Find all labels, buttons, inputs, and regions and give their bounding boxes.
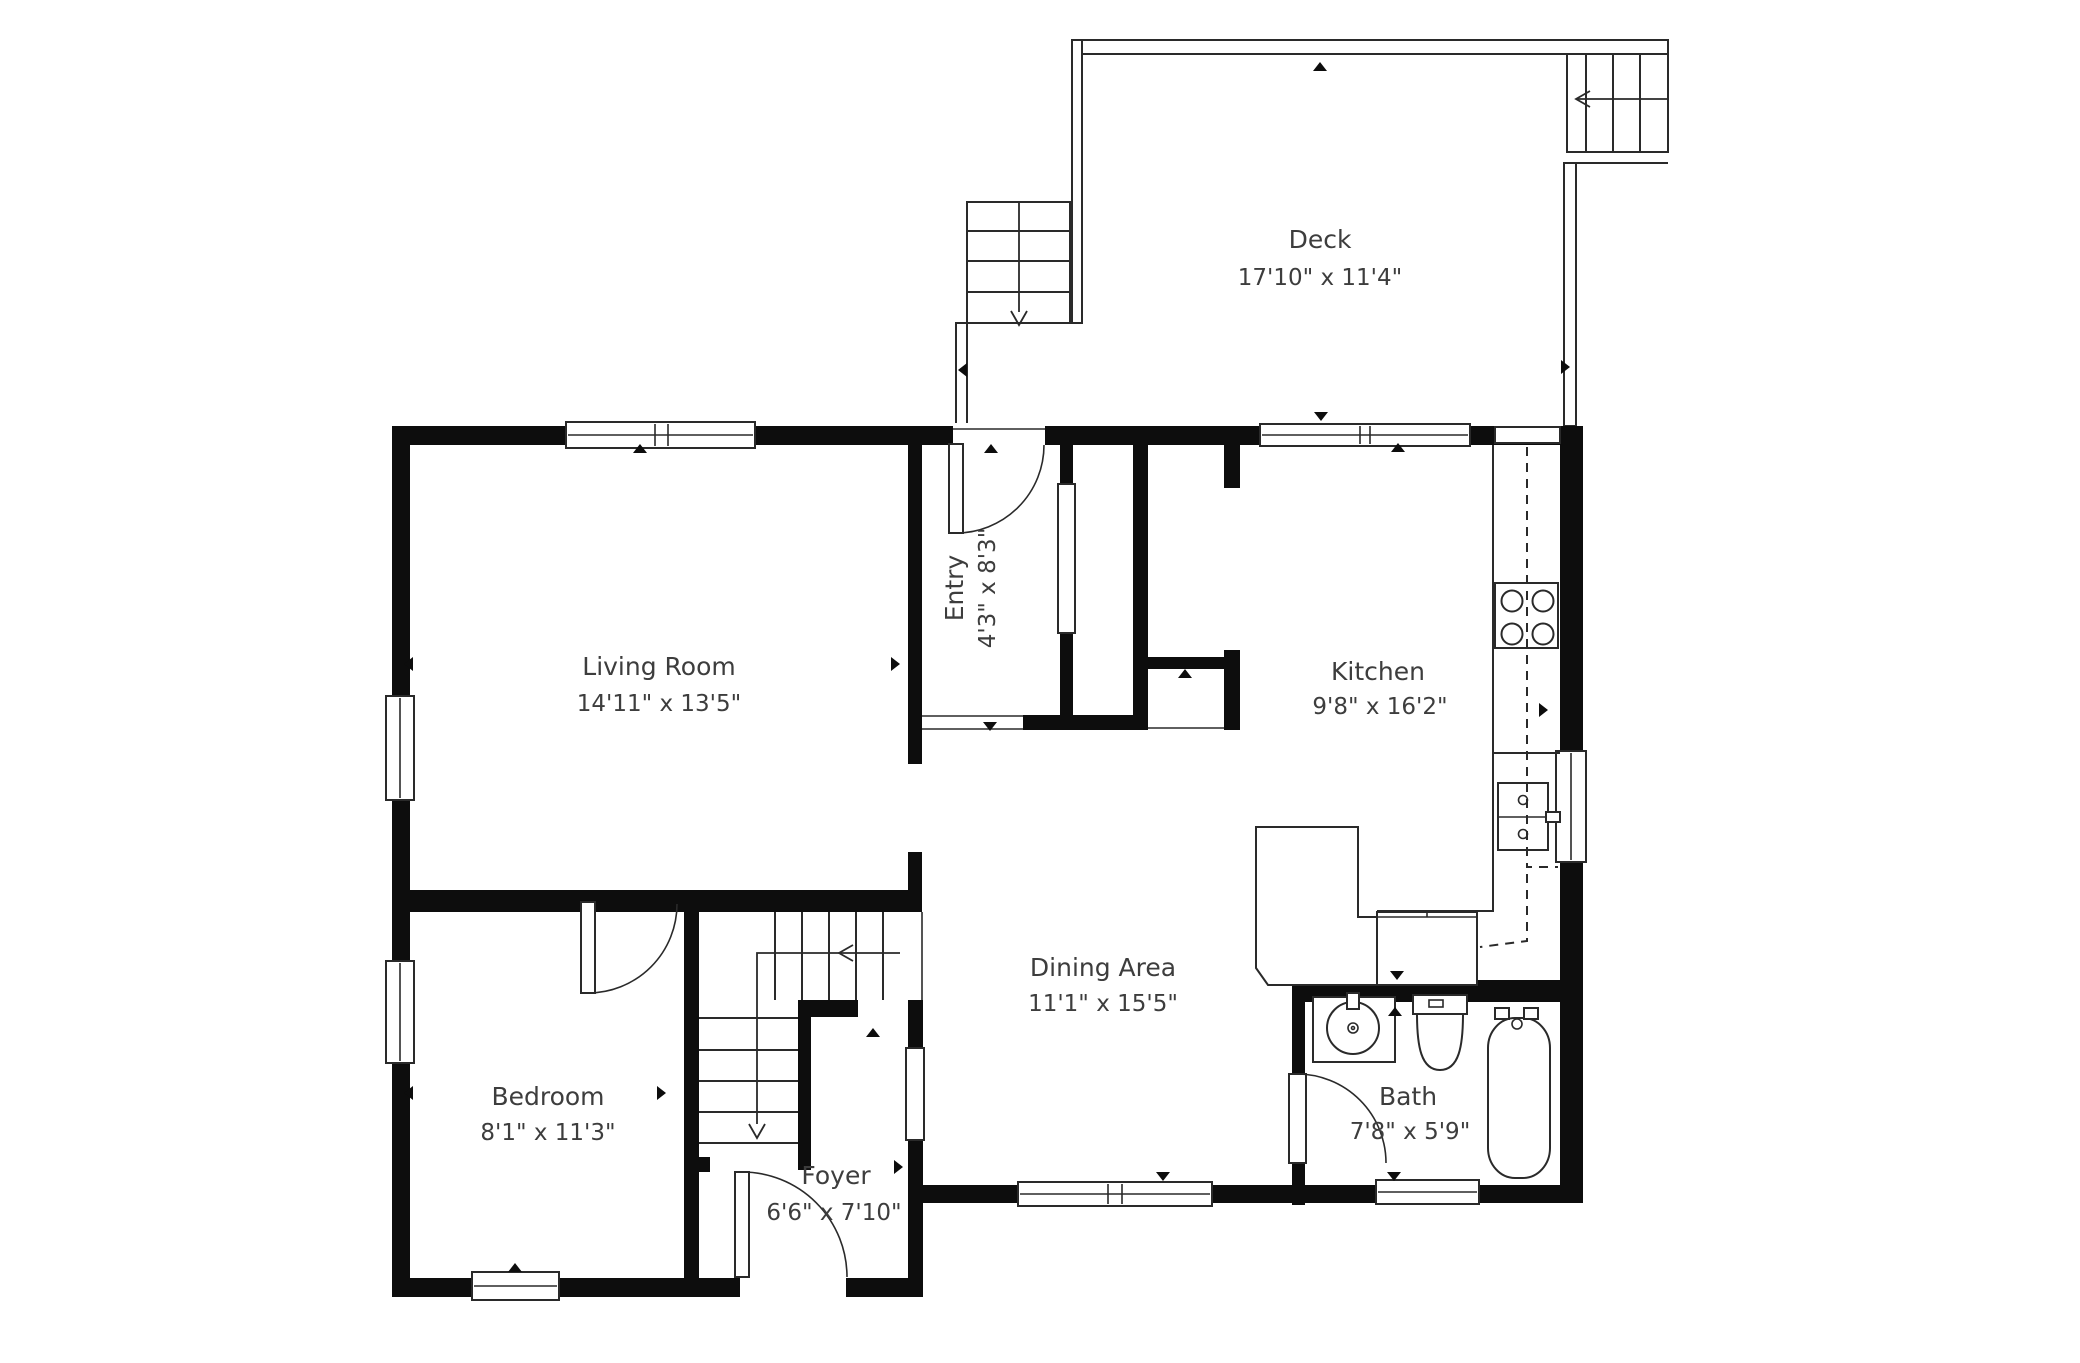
room-dims: 9'8" x 16'2"	[1312, 694, 1447, 720]
room-labels: Deck 17'10" x 11'4" Living Room 14'11" x…	[480, 225, 1470, 1226]
room-dims: 17'10" x 11'4"	[1238, 265, 1402, 291]
room-dims: 14'11" x 13'5"	[577, 691, 741, 717]
room-name: Deck	[1289, 225, 1352, 254]
wall-kitchen-stub-lower	[1224, 650, 1240, 730]
door-deck-entry	[949, 444, 1044, 533]
marker-up-icon	[866, 1028, 880, 1037]
marker-up-icon	[1313, 62, 1327, 71]
wall-living-bottom	[392, 890, 922, 912]
room-name: Entry	[940, 555, 969, 622]
wall-foyer-right-upper	[908, 1000, 923, 1050]
wall-entry-left	[908, 445, 922, 766]
room-name: Kitchen	[1331, 657, 1425, 686]
marker-down-icon	[1156, 1172, 1170, 1181]
room-label-entry: Entry 4'3" x 8'3"	[940, 528, 1001, 649]
opening-entry-closet	[1058, 484, 1075, 633]
wall-stair-bar	[798, 1000, 858, 1017]
marker-right-icon	[894, 1160, 903, 1174]
kitchen-sink-icon	[1498, 783, 1560, 850]
pantry-cabinet	[1256, 827, 1377, 985]
bath-sink-icon	[1313, 993, 1395, 1062]
toilet-icon	[1413, 995, 1467, 1070]
deck-right-edge	[1564, 163, 1576, 426]
window-top-right-thin	[1495, 427, 1560, 443]
room-label-kitchen: Kitchen 9'8" x 16'2"	[1312, 657, 1447, 720]
window-bedroom-bottom	[472, 1272, 559, 1300]
peninsula-cabinet	[1377, 912, 1477, 985]
opening-living-dining	[906, 764, 924, 852]
opening-foyer-dining	[906, 1048, 924, 1140]
marker-down-icon	[1314, 412, 1328, 421]
wall-hall-closet	[1133, 442, 1148, 722]
wall-stair-foyer-divider	[798, 1017, 811, 1170]
wall-foyer-step	[908, 1203, 923, 1297]
wall-bath-left-lower	[1292, 1161, 1305, 1205]
wall-bottom-dining-bath	[908, 1185, 1583, 1203]
floorplan-drawing: Deck 17'10" x 11'4" Living Room 14'11" x…	[0, 0, 2080, 1363]
room-label-foyer: Foyer 6'6" x 7'10"	[766, 1161, 901, 1226]
room-label-dining: Dining Area 11'1" x 15'5"	[1028, 953, 1178, 1017]
opening-foyer-door	[740, 1276, 846, 1299]
room-name: Dining Area	[1030, 953, 1176, 982]
wall-bath-left-upper	[1292, 1002, 1305, 1080]
deck-upper-stairs	[1567, 54, 1668, 163]
window-living-left	[386, 696, 414, 800]
room-label-deck: Deck 17'10" x 11'4"	[1238, 225, 1402, 291]
deck-left-stairs	[967, 202, 1070, 325]
wall-entry-right-upper	[1060, 442, 1073, 488]
wall-bedroom-right	[684, 890, 699, 1297]
marker-up-icon	[508, 1263, 522, 1272]
window-bath-bottom	[1376, 1180, 1479, 1204]
door-bedroom	[581, 902, 677, 993]
wall-living-dining	[908, 850, 922, 912]
room-dims: 8'1" x 11'3"	[480, 1120, 615, 1146]
room-dims: 7'8" x 5'9"	[1350, 1119, 1471, 1145]
floorplan-canvas: Deck 17'10" x 11'4" Living Room 14'11" x…	[0, 0, 2080, 1363]
bathtub-icon	[1488, 1008, 1550, 1178]
window-living-top	[566, 422, 755, 448]
deck-left-edge	[1072, 40, 1082, 323]
room-dims: 6'6" x 7'10"	[766, 1200, 901, 1226]
wall-foyer-right-lower	[908, 1138, 923, 1203]
window-kitchen-right	[1556, 751, 1586, 862]
wall-left	[392, 426, 410, 1297]
room-dims: 11'1" x 15'5"	[1028, 991, 1178, 1017]
wall-stair-nub	[684, 1157, 710, 1172]
wall-entry-bottom	[1023, 715, 1148, 730]
opening-deck-door	[953, 423, 1045, 447]
room-name: Bedroom	[491, 1082, 604, 1111]
room-dims: 4'3" x 8'3"	[975, 528, 1001, 649]
marker-up-icon	[1178, 669, 1192, 678]
room-name: Foyer	[801, 1161, 871, 1190]
room-name: Living Room	[582, 652, 735, 681]
marker-right-icon	[891, 657, 900, 671]
window-bedroom-left	[386, 961, 414, 1063]
deck-top-edge	[1072, 40, 1668, 54]
room-name: Bath	[1379, 1082, 1437, 1111]
room-label-living: Living Room 14'11" x 13'5"	[577, 652, 741, 717]
stair-direction-arrow-down-icon	[749, 1124, 765, 1138]
marker-right-icon	[1539, 703, 1548, 717]
room-label-bath: Bath 7'8" x 5'9"	[1350, 1082, 1471, 1145]
window-kitchen-top	[1260, 424, 1470, 446]
wall-kitchen-stub-upper	[1224, 442, 1240, 488]
wall-entry-right-lower	[1060, 631, 1073, 722]
wall-closet-top	[1148, 657, 1224, 669]
window-dining-bottom	[1018, 1182, 1212, 1206]
room-label-bedroom: Bedroom 8'1" x 11'3"	[480, 1082, 615, 1146]
marker-right-icon	[657, 1086, 666, 1100]
